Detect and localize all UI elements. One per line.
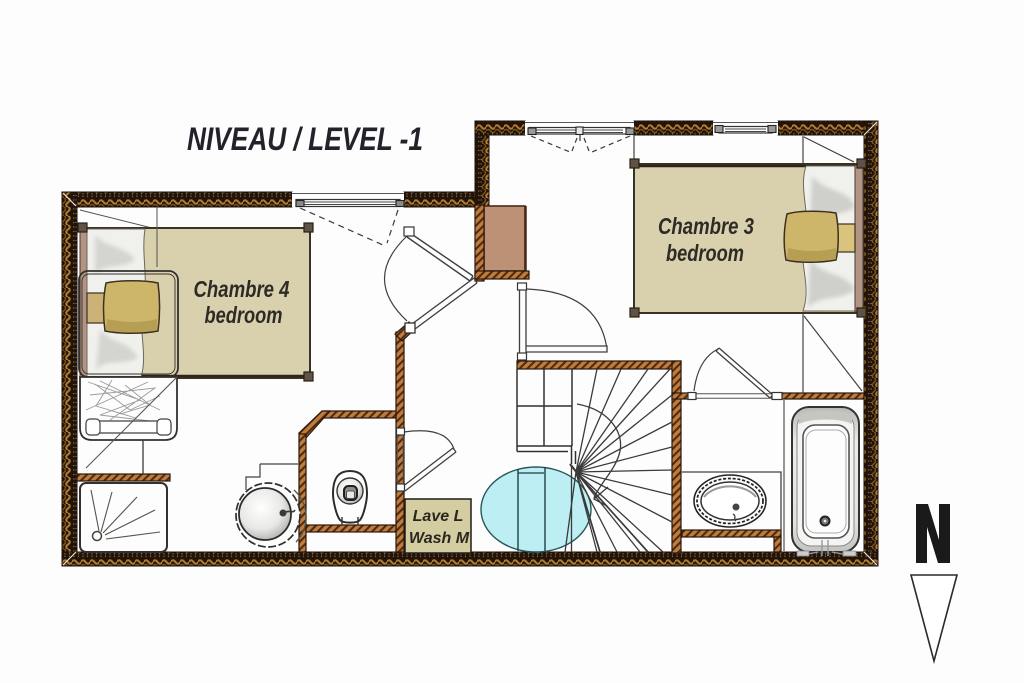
svg-text:bedroom: bedroom [205, 302, 283, 328]
svg-text:Chambre 3: Chambre 3 [658, 213, 754, 239]
svg-text:Chambre 4: Chambre 4 [194, 276, 290, 302]
svg-text:bedroom: bedroom [666, 240, 744, 266]
svg-text:NIVEAU / LEVEL -1: NIVEAU / LEVEL -1 [187, 121, 423, 157]
svg-text:Lave L: Lave L [413, 508, 464, 525]
svg-text:Wash M: Wash M [409, 530, 470, 547]
